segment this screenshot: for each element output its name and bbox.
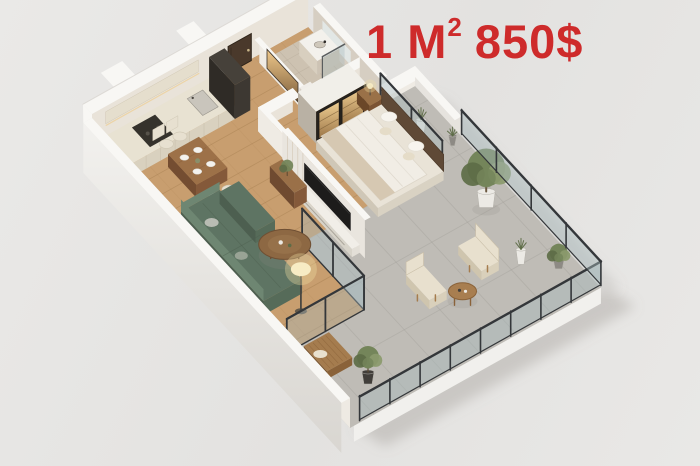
floorplan-3d-render bbox=[0, 0, 700, 466]
price-label: 1 M2850$ bbox=[366, 14, 583, 65]
price-amount: 850$ bbox=[475, 15, 584, 68]
real-estate-ad: 1 M2850$ bbox=[0, 0, 700, 466]
price-area-superscript: 2 bbox=[447, 12, 461, 42]
price-area: 1 M bbox=[366, 15, 447, 68]
